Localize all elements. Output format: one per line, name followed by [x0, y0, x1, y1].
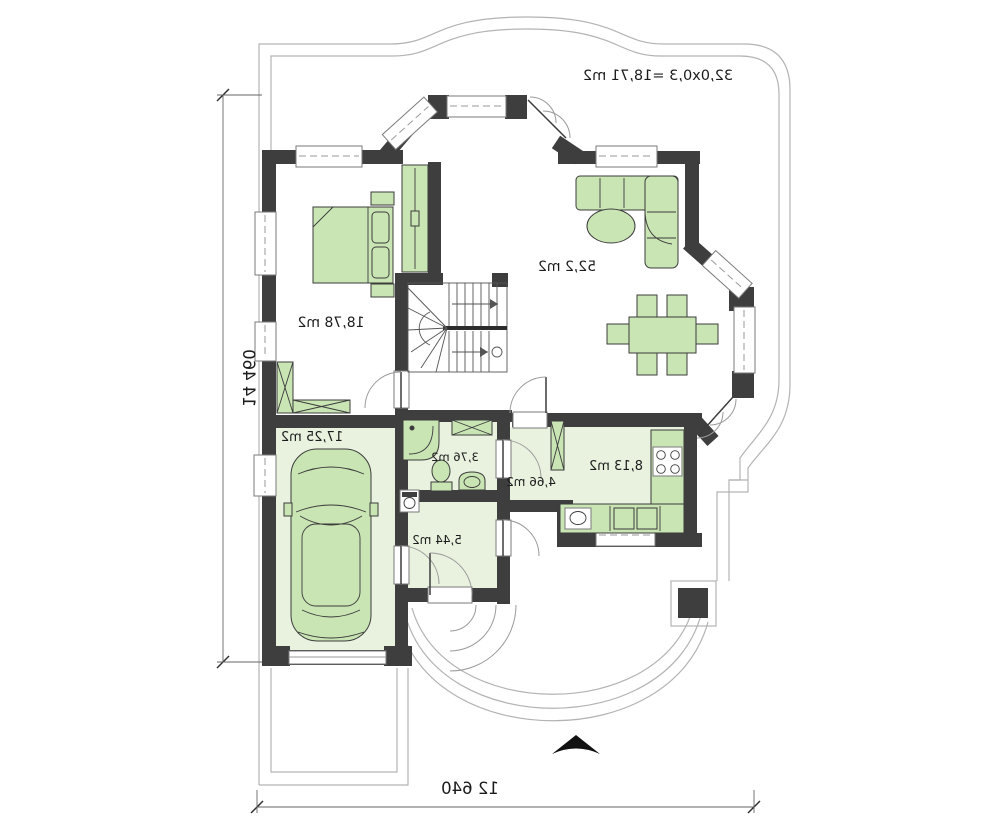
- top-bay-diagonal-window: [382, 97, 437, 149]
- living-right-wall-upper: [685, 151, 699, 248]
- right-bay-block-lower: [732, 371, 754, 398]
- bedroom-right-wall-upper: [428, 162, 441, 284]
- front-door-opening: [428, 587, 472, 603]
- bathroom-sink: [459, 472, 485, 490]
- entrance-arrow-icon: [552, 735, 600, 754]
- room-label-kitchen: 8,13 m2: [589, 459, 643, 474]
- hall-cabinet-hatched: [551, 421, 564, 470]
- living-hall-door: [510, 377, 546, 413]
- room-label-bedroom: 18,78 m2: [297, 315, 364, 331]
- dining-set: [607, 295, 718, 375]
- stair-wall-stub: [492, 273, 508, 287]
- room-label-living: 52,2 m2: [538, 259, 596, 275]
- right-bay-diagonal-window: [702, 251, 752, 299]
- top-bay-terrace-door: [528, 97, 570, 138]
- floor-plan-page: 32,0x0,3 =18,71 m2 52,2 m2 18,78 m2 17,2…: [0, 0, 1000, 822]
- stove: [653, 447, 682, 476]
- garage-left-window: [254, 455, 276, 496]
- kitchen-cabinet-1: [614, 508, 634, 529]
- room-label-bathroom: 3,76 m2: [431, 450, 479, 464]
- bathroom-radiator: [452, 420, 492, 435]
- kitchen-cabinet-2: [637, 508, 657, 529]
- stair-arrow-down: [452, 347, 502, 357]
- car-mirror-left: [284, 503, 292, 516]
- room-label-garage: 17,25 m2: [281, 430, 343, 445]
- driveway: [259, 668, 408, 785]
- coffee-table: [587, 209, 635, 243]
- porch-arc-outer: [400, 622, 708, 721]
- bedroom-garage-wall: [262, 415, 408, 428]
- right-bay-side-window: [734, 307, 755, 373]
- dining-table: [629, 317, 696, 353]
- toilet: [431, 460, 452, 491]
- bedroom-closet-hatched: [277, 362, 350, 413]
- living-top-window: [596, 146, 657, 167]
- room-label-entry: 5,44 m2: [412, 533, 462, 547]
- room-label-hall: 4,66 m2: [506, 475, 556, 489]
- height-dimension: 14 460: [239, 349, 258, 407]
- boiler: [400, 490, 419, 512]
- terrace-annotation: 32,0x0,3 =18,71 m2: [583, 68, 733, 84]
- car: [284, 449, 378, 641]
- bedroom-left-window-1: [255, 212, 276, 275]
- living-hall-door-opening: [513, 412, 547, 428]
- porch-pillar: [678, 588, 708, 618]
- car-mirror-right: [370, 503, 378, 516]
- stair-arrow-up: [452, 299, 498, 309]
- floor-plan-drawing: 32,0x0,3 =18,71 m2 52,2 m2 18,78 m2 17,2…: [0, 0, 1000, 822]
- kitchen-sink: [565, 508, 591, 529]
- entrance-steps: [450, 605, 516, 671]
- bedroom-top-window: [296, 146, 362, 167]
- bedroom-wardrobe: [402, 165, 428, 272]
- top-bay-block-right: [505, 95, 527, 119]
- width-dimension: 12 640: [441, 779, 499, 798]
- staircase: [408, 283, 507, 372]
- top-bay-front-window: [447, 96, 506, 117]
- garage-right-wall: [395, 428, 408, 652]
- bed: [313, 192, 394, 297]
- kitchen-right-wall: [684, 427, 697, 547]
